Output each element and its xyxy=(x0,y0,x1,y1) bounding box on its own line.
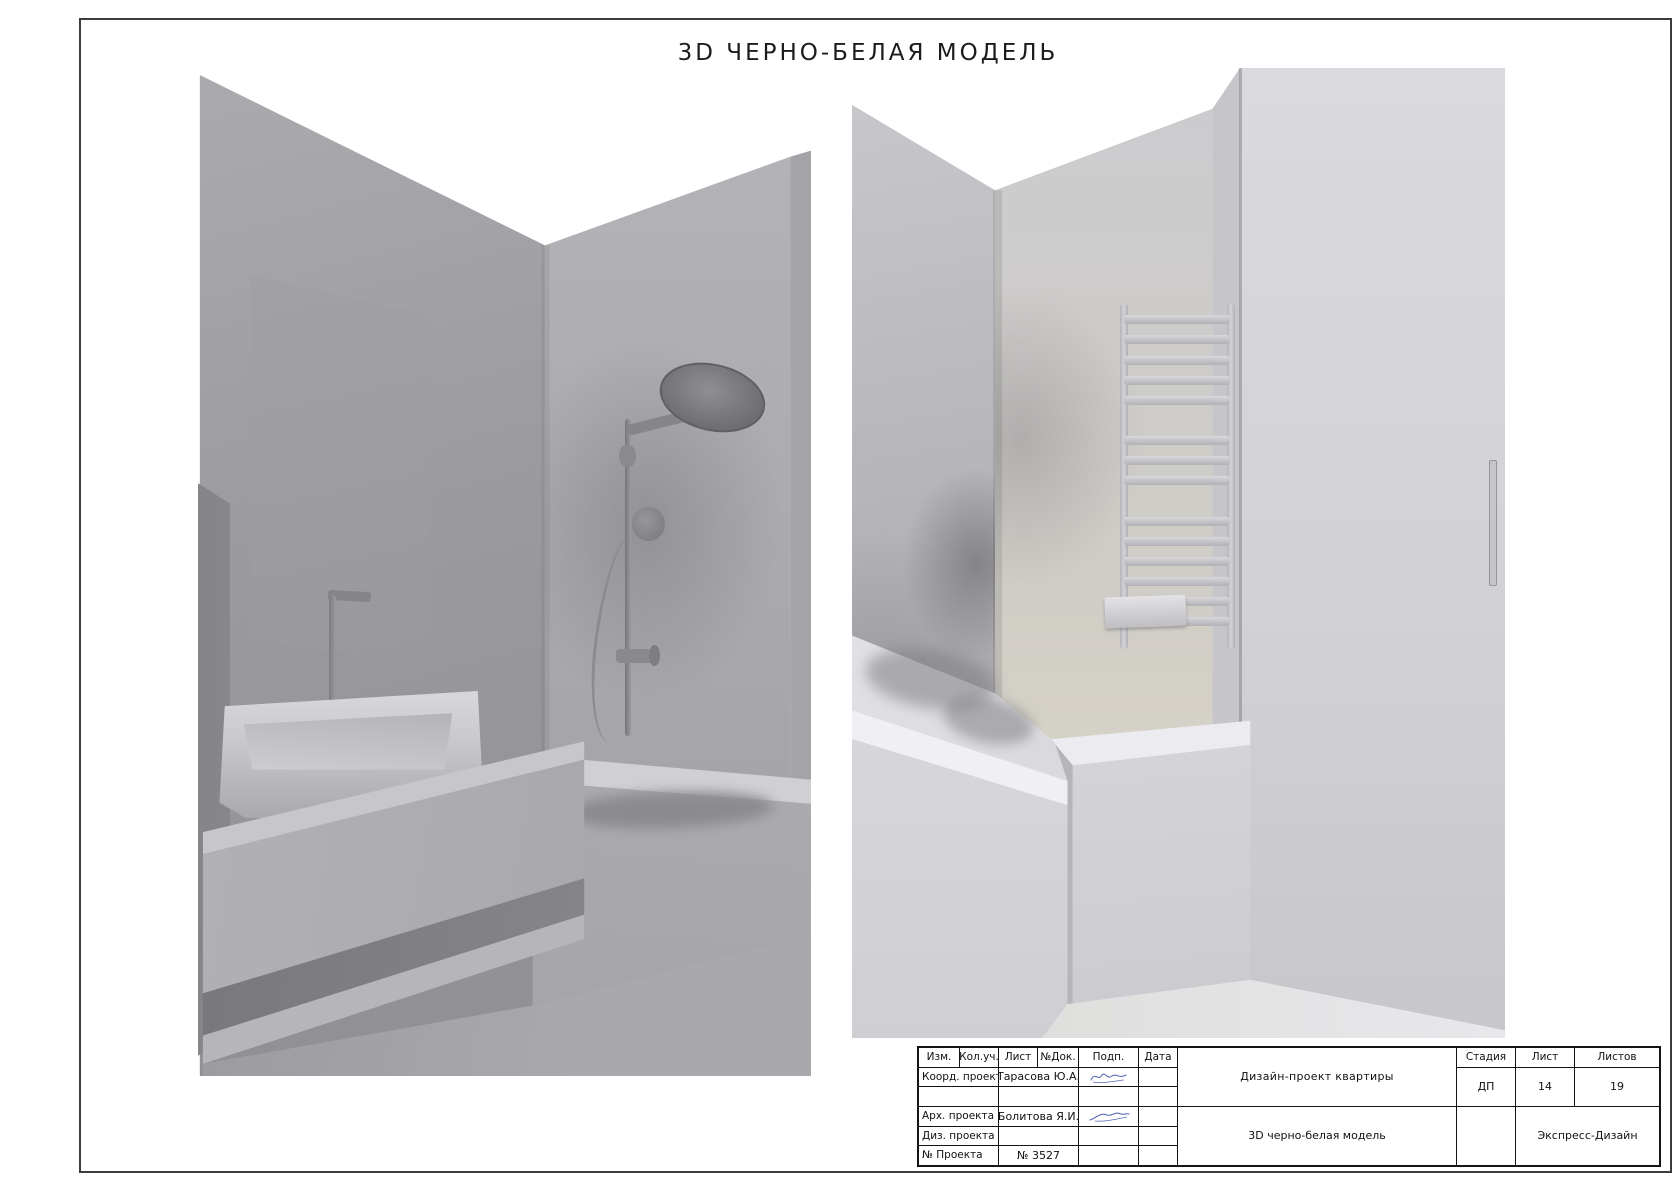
radiator-bar xyxy=(1124,376,1230,385)
hand-shower xyxy=(632,507,665,540)
empty-cell xyxy=(1139,1127,1177,1146)
company-name: Экспресс-Дизайн xyxy=(1516,1107,1659,1165)
stamp-header-podp: Подп. xyxy=(1079,1048,1138,1067)
sheet-name: 3D черно-белая модель xyxy=(1178,1107,1456,1165)
stamp-header-data: Дата xyxy=(1139,1048,1177,1067)
stage-label: Стадия xyxy=(1457,1048,1515,1067)
project-title: Дизайн-проект квартиры xyxy=(1178,1048,1456,1106)
radiator-bar xyxy=(1124,537,1230,546)
mixer-knob xyxy=(649,645,660,666)
towel-radiator xyxy=(1120,309,1235,645)
empty-cell xyxy=(1139,1146,1177,1165)
empty-cell xyxy=(1079,1127,1138,1146)
radiator-bar xyxy=(1124,436,1230,445)
render-view-tub-radiator xyxy=(852,68,1505,1038)
sheets-total: 19 xyxy=(1575,1068,1659,1106)
empty-cell xyxy=(1079,1146,1138,1165)
express-design-logo-icon xyxy=(1463,1113,1509,1159)
stamp-header-izm: Изм. xyxy=(919,1048,959,1067)
arch-signature xyxy=(1079,1107,1138,1126)
title-block: Изм. Кол.уч. Лист №Док. Подп. Дата Дизай… xyxy=(917,1046,1661,1167)
page-title: 3D ЧЕРНО-БЕЛАЯ МОДЕЛЬ xyxy=(228,40,1508,66)
coord-name: Тарасова Ю.А. xyxy=(999,1068,1078,1087)
stamp-header-dok: №Док. xyxy=(1038,1048,1078,1067)
drawing-sheet: { "sheet": { "title": "3D ЧЕРНО-БЕЛАЯ МО… xyxy=(0,0,1680,1187)
radiator-shelf xyxy=(1105,594,1187,628)
arch-name: Болитова Я.И. xyxy=(999,1107,1078,1126)
radiator-bar xyxy=(1124,517,1230,526)
radiator-bar xyxy=(1124,577,1230,586)
radiator-bar xyxy=(1124,335,1230,344)
sheets-label: Листов xyxy=(1575,1048,1659,1067)
empty-cell xyxy=(999,1127,1078,1146)
empty-cell xyxy=(1139,1087,1177,1106)
radiator-bar xyxy=(1124,456,1230,465)
signature-icon xyxy=(1087,1108,1131,1124)
empty-cell xyxy=(999,1087,1078,1106)
coord-label: Коорд. проекта xyxy=(919,1068,998,1087)
radiator-bar xyxy=(1124,315,1230,324)
sheet-label: Лист xyxy=(1516,1048,1574,1067)
arch-label: Арх. проекта xyxy=(919,1107,998,1126)
radiator-bar xyxy=(1124,356,1230,365)
sheet-number: 14 xyxy=(1516,1068,1574,1106)
cabinet-handle xyxy=(1489,460,1497,586)
empty-cell xyxy=(1139,1107,1177,1126)
diz-label: Диз. проекта xyxy=(919,1127,998,1146)
shower-wall-mount xyxy=(619,445,636,467)
faucet xyxy=(329,596,336,703)
stamp-header-list: Лист xyxy=(999,1048,1037,1067)
stage-value: ДП xyxy=(1457,1068,1515,1106)
coord-date xyxy=(1139,1068,1177,1087)
render-view-vanity-shower xyxy=(198,68,811,1076)
empty-cell xyxy=(919,1087,998,1106)
signature-icon xyxy=(1087,1069,1131,1085)
coord-signature xyxy=(1079,1068,1138,1087)
stamp-header-koluch: Кол.уч. xyxy=(960,1048,998,1067)
company-logo xyxy=(1457,1107,1515,1165)
project-number-label: № Проекта xyxy=(919,1146,998,1165)
shower-mixer xyxy=(616,649,653,663)
project-number-value: № 3527 xyxy=(999,1146,1078,1165)
radiator-bar xyxy=(1124,557,1230,566)
radiator-bar xyxy=(1124,396,1230,405)
empty-cell xyxy=(1079,1087,1138,1106)
radiator-bar xyxy=(1124,476,1230,485)
